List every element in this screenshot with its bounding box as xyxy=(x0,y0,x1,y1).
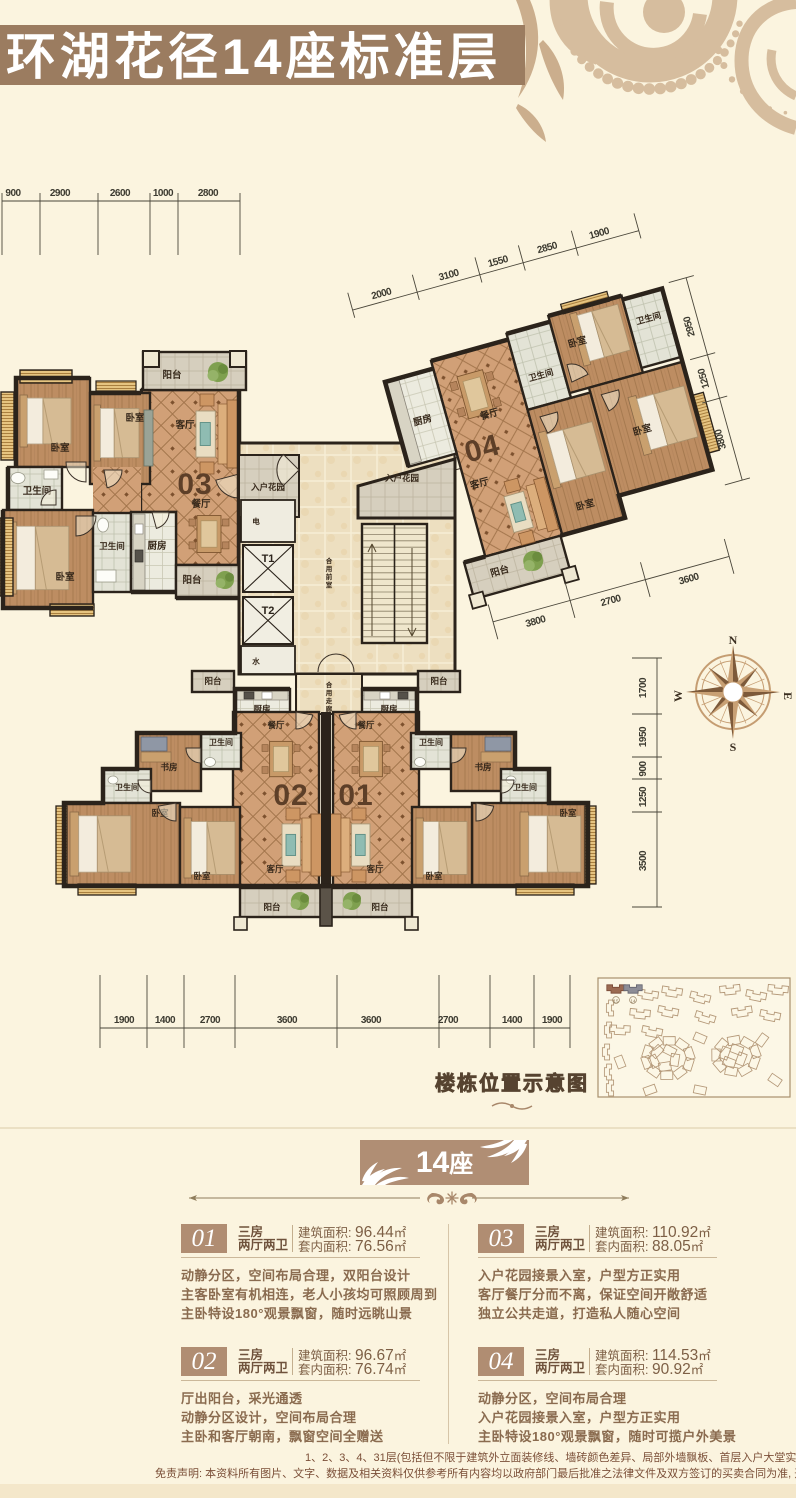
svg-text:15: 15 xyxy=(613,998,619,1003)
svg-text:14: 14 xyxy=(630,998,636,1003)
svg-text:书房: 书房 xyxy=(160,762,177,772)
svg-text:1400: 1400 xyxy=(502,1015,523,1026)
svg-text:900: 900 xyxy=(5,188,21,199)
svg-text:阳台: 阳台 xyxy=(371,902,389,912)
svg-text:02: 02 xyxy=(273,779,308,812)
svg-text:卧室: 卧室 xyxy=(50,442,70,454)
svg-text:入户花园: 入户花园 xyxy=(250,482,285,492)
svg-text:阳台: 阳台 xyxy=(182,574,202,586)
svg-text:卧室: 卧室 xyxy=(125,412,145,424)
svg-text:卫生间: 卫生间 xyxy=(115,782,139,792)
svg-text:走: 走 xyxy=(325,696,333,705)
svg-text:廊: 廊 xyxy=(326,704,333,713)
svg-text:3500: 3500 xyxy=(638,850,649,871)
svg-text:2700: 2700 xyxy=(600,593,623,609)
svg-text:1000: 1000 xyxy=(153,188,174,199)
svg-text:1900: 1900 xyxy=(542,1015,563,1026)
svg-text:室: 室 xyxy=(326,580,333,589)
svg-text:电: 电 xyxy=(252,516,260,526)
svg-text:T1: T1 xyxy=(262,553,275,565)
svg-text:餐厅: 餐厅 xyxy=(356,720,375,730)
svg-text:1900: 1900 xyxy=(114,1015,135,1026)
svg-text:卧室: 卧室 xyxy=(193,871,211,881)
svg-text:入户花园: 入户花园 xyxy=(384,473,419,483)
svg-text:阳台: 阳台 xyxy=(430,676,448,686)
svg-text:2900: 2900 xyxy=(50,188,71,199)
svg-text:3600: 3600 xyxy=(678,571,701,587)
svg-text:水: 水 xyxy=(252,656,260,666)
svg-text:W: W xyxy=(671,690,685,702)
svg-text:卧室: 卧室 xyxy=(559,808,577,818)
svg-text:3600: 3600 xyxy=(361,1015,382,1026)
svg-text:S: S xyxy=(730,740,737,754)
svg-text:卫生间: 卫生间 xyxy=(419,737,443,747)
svg-text:卫生间: 卫生间 xyxy=(513,782,537,792)
svg-text:3800: 3800 xyxy=(524,614,547,630)
svg-text:卫生间: 卫生间 xyxy=(209,737,233,747)
svg-text:1250: 1250 xyxy=(696,366,712,389)
svg-text:阳台: 阳台 xyxy=(204,676,222,686)
svg-text:1950: 1950 xyxy=(638,726,649,747)
svg-text:N: N xyxy=(729,633,738,647)
svg-text:餐厅: 餐厅 xyxy=(266,720,285,730)
svg-text:客厅: 客厅 xyxy=(365,864,384,874)
svg-text:2700: 2700 xyxy=(438,1015,459,1026)
svg-text:1250: 1250 xyxy=(638,786,649,807)
svg-text:客厅: 客厅 xyxy=(265,864,284,874)
svg-text:卫生间: 卫生间 xyxy=(99,541,125,551)
svg-text:厨房: 厨房 xyxy=(147,540,166,552)
svg-text:卧室: 卧室 xyxy=(55,571,75,583)
svg-text:03: 03 xyxy=(177,468,212,501)
svg-text:1700: 1700 xyxy=(638,677,649,698)
svg-text:2950: 2950 xyxy=(682,314,698,337)
svg-text:书房: 书房 xyxy=(474,762,491,772)
svg-text:1400: 1400 xyxy=(155,1015,176,1026)
svg-text:2600: 2600 xyxy=(110,188,131,199)
svg-text:E: E xyxy=(781,692,795,700)
svg-text:卧室: 卧室 xyxy=(425,871,443,881)
svg-text:2800: 2800 xyxy=(198,188,219,199)
svg-text:2700: 2700 xyxy=(200,1015,221,1026)
svg-text:用: 用 xyxy=(325,565,333,573)
svg-text:合: 合 xyxy=(325,556,333,565)
svg-text:阳台: 阳台 xyxy=(162,369,182,381)
svg-text:客厅: 客厅 xyxy=(174,419,195,431)
svg-text:900: 900 xyxy=(638,760,649,776)
svg-text:T2: T2 xyxy=(262,605,275,617)
svg-text:合: 合 xyxy=(325,680,333,689)
svg-text:楼栋位置示意图: 楼栋位置示意图 xyxy=(435,1071,589,1095)
svg-text:前: 前 xyxy=(326,572,333,581)
svg-text:01: 01 xyxy=(338,779,373,812)
svg-text:阳台: 阳台 xyxy=(263,902,281,912)
svg-text:3600: 3600 xyxy=(277,1015,298,1026)
svg-text:用: 用 xyxy=(325,689,333,697)
